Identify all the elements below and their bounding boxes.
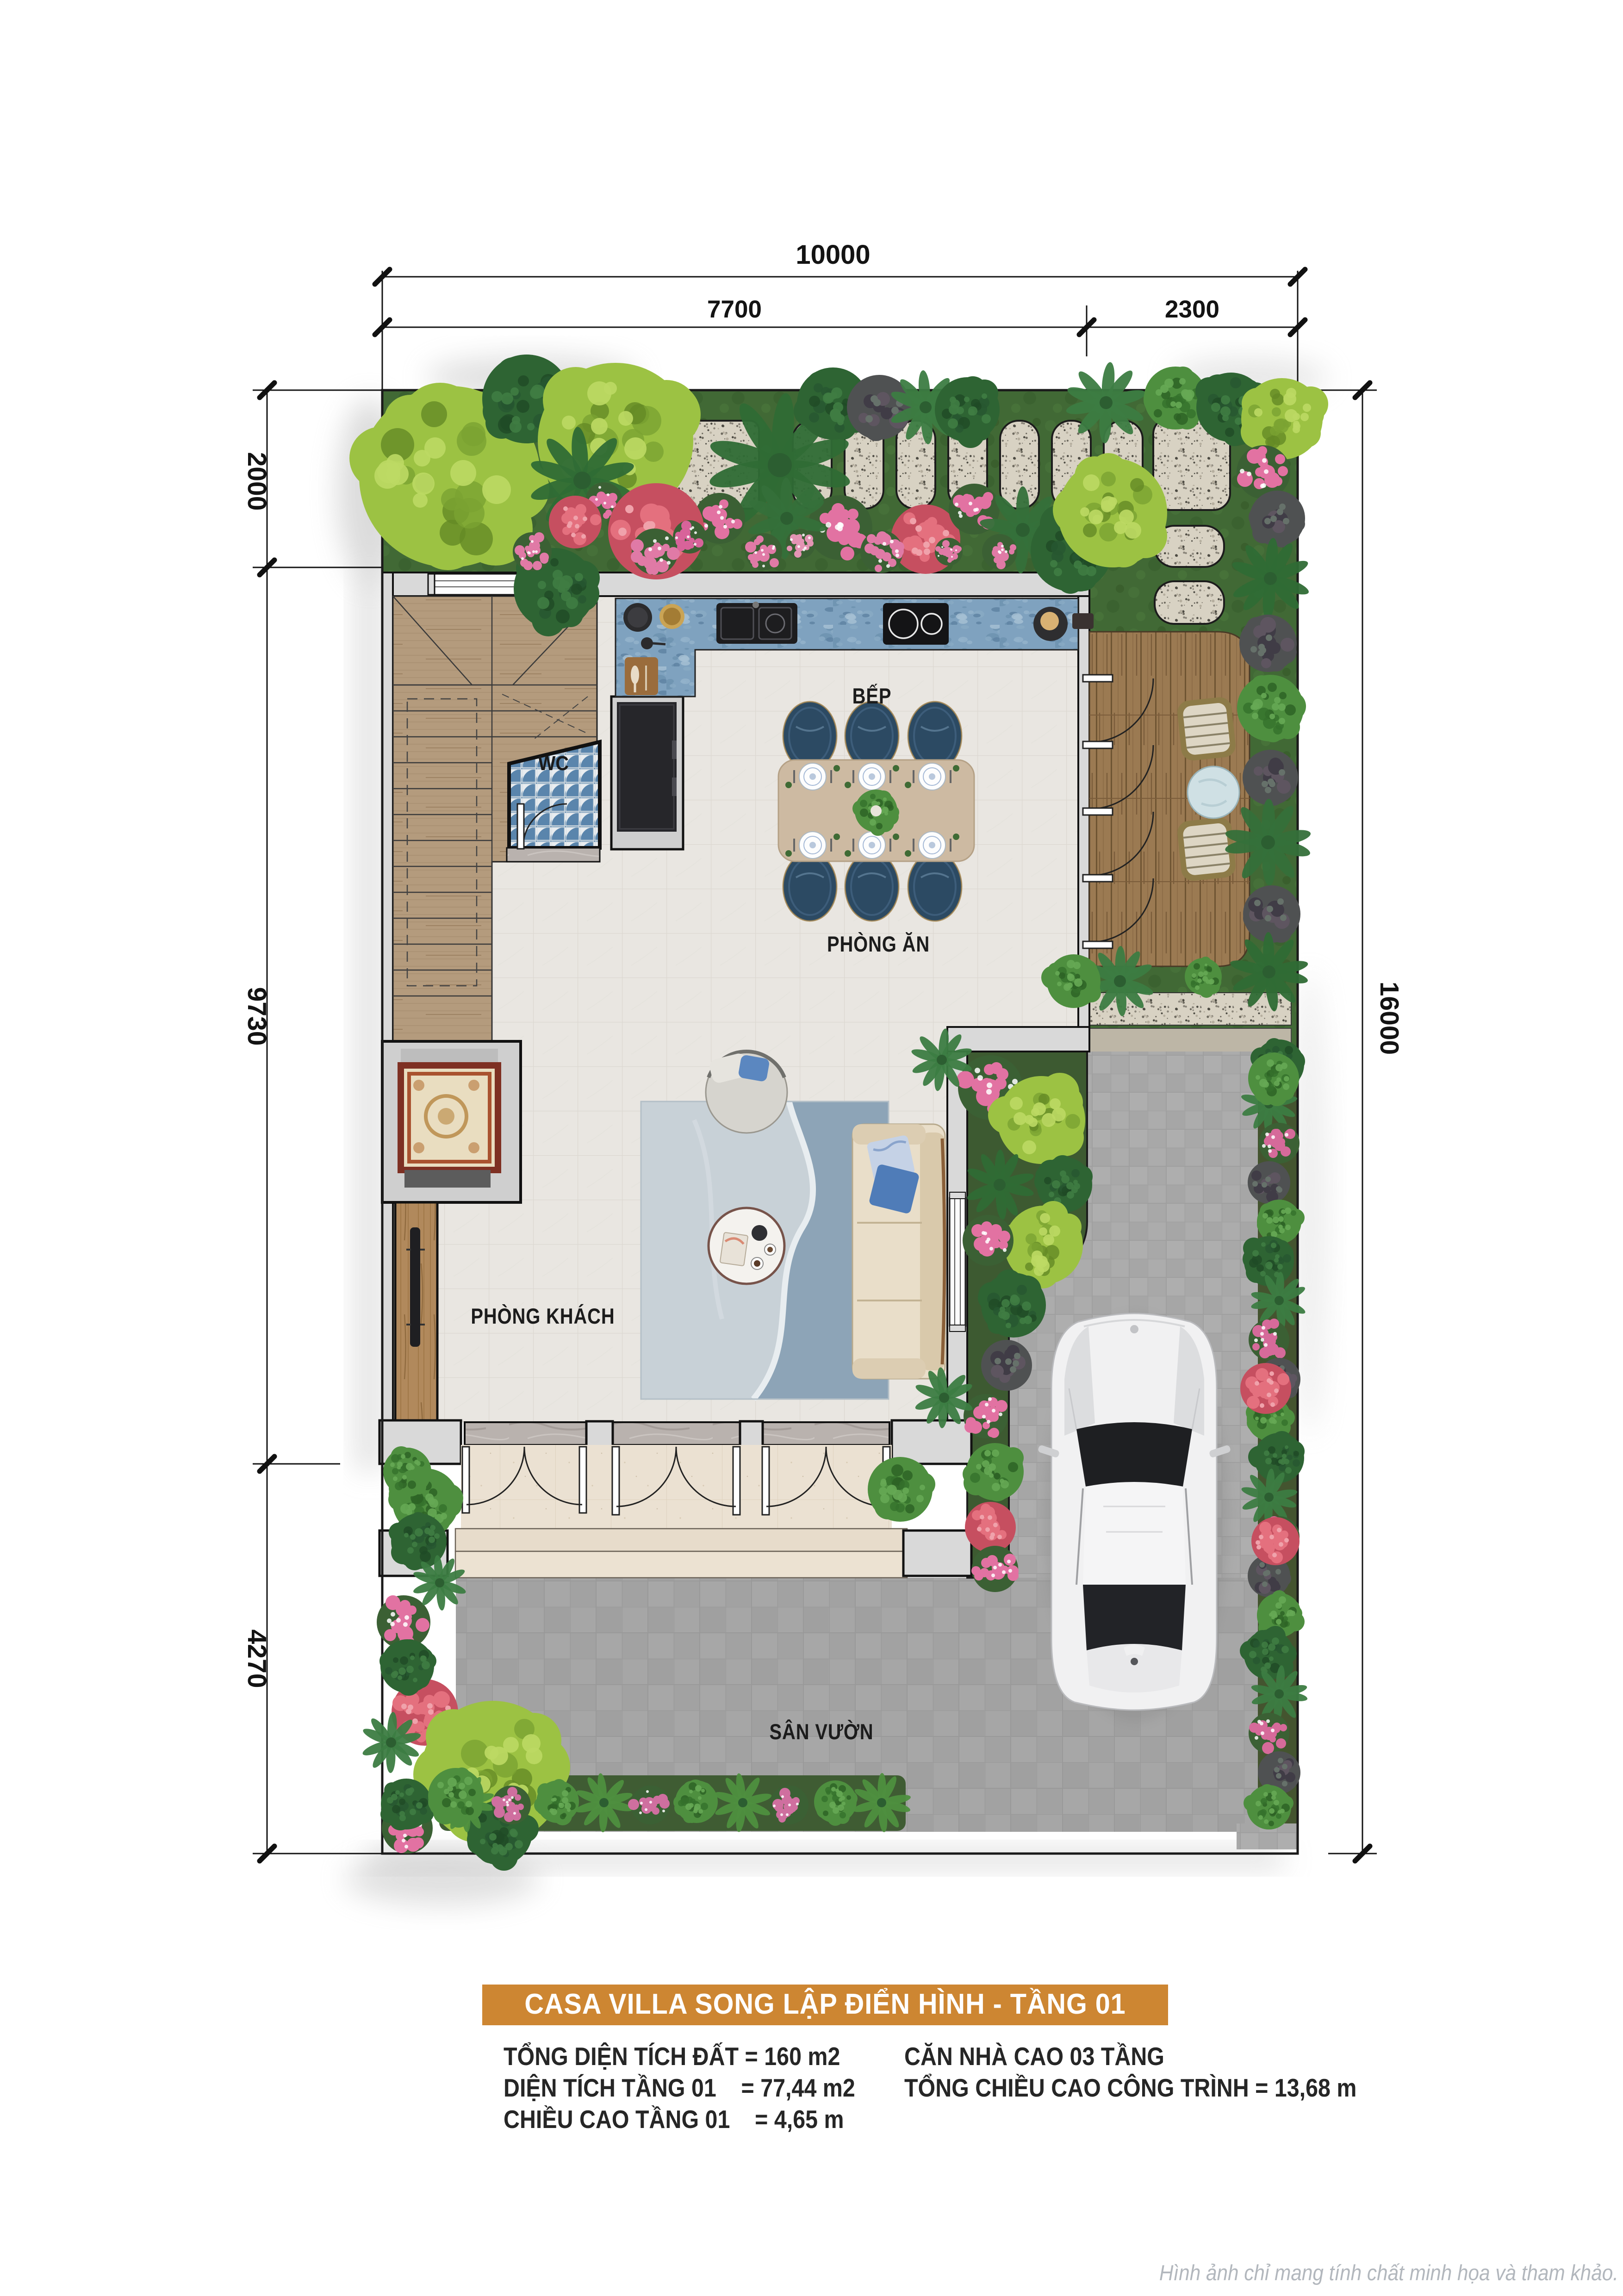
svg-text:TỔNG CHIỀU CAO CÔNG TRÌNH = 13: TỔNG CHIỀU CAO CÔNG TRÌNH = 13,68 m <box>904 2073 1356 2102</box>
svg-text:Hình ảnh chỉ mang tính chất mi: Hình ảnh chỉ mang tính chất minh họa và … <box>1159 2261 1618 2285</box>
svg-text:DIỆN TÍCH TẦNG 01 = 77,44 m: DIỆN TÍCH TẦNG 01 = 77,44 m2 <box>504 2073 855 2102</box>
svg-text:2300: 2300 <box>1165 296 1219 323</box>
svg-text:PHÒNG KHÁCH: PHÒNG KHÁCH <box>471 1304 615 1329</box>
svg-text:2000: 2000 <box>242 452 272 511</box>
svg-text:WC: WC <box>538 752 569 774</box>
svg-text:16000: 16000 <box>1374 982 1404 1055</box>
svg-text:7700: 7700 <box>707 296 762 323</box>
svg-text:TỔNG DIỆN TÍCH ĐẤT = 160 m2: TỔNG DIỆN TÍCH ĐẤT = 160 m2 <box>504 2042 840 2071</box>
svg-text:9730: 9730 <box>242 987 272 1046</box>
svg-text:BẾP: BẾP <box>852 684 892 709</box>
svg-text:10000: 10000 <box>796 240 870 270</box>
svg-text:4270: 4270 <box>242 1630 272 1688</box>
svg-text:CASA VILLA SONG LẬP ĐIỂN HÌNH: CASA VILLA SONG LẬP ĐIỂN HÌNH - TẦNG 01 <box>524 1988 1126 2020</box>
svg-text:PHÒNG ĂN: PHÒNG ĂN <box>827 932 930 957</box>
svg-text:CHIỀU CAO TẦNG 01 = 4,65 m: CHIỀU CAO TẦNG 01 = 4,65 m <box>504 2105 844 2134</box>
svg-text:SÂN VƯỜN: SÂN VƯỜN <box>770 1719 874 1744</box>
svg-text:CĂN NHÀ CAO 03 TẦNG: CĂN NHÀ CAO 03 TẦNG <box>904 2042 1164 2071</box>
